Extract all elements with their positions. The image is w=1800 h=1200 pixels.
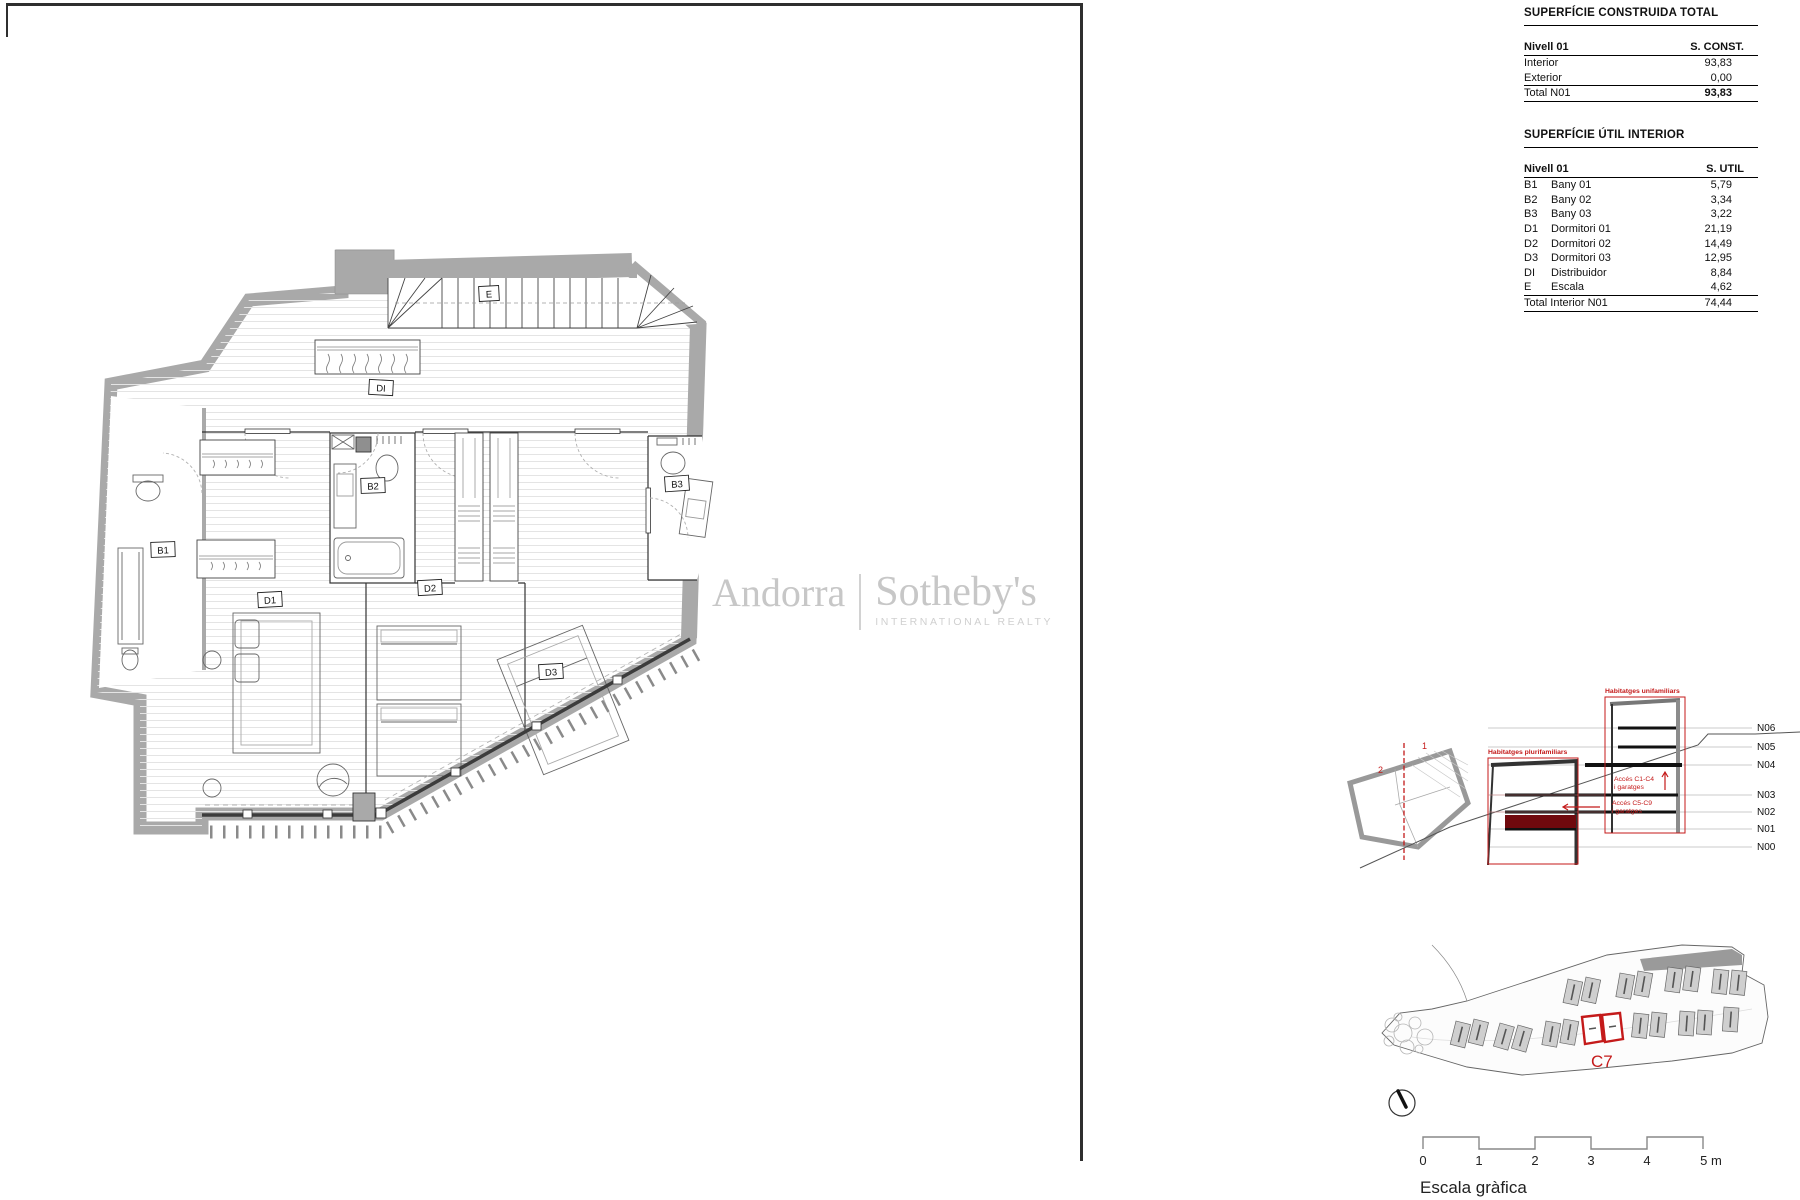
table-total-row: Total N01 93,83	[1524, 86, 1758, 102]
svg-text:i garatges: i garatges	[1614, 784, 1644, 791]
unit-label: C7	[1591, 1052, 1613, 1071]
label-bany-02: B2	[361, 478, 386, 494]
level-n01-highlight	[1505, 815, 1576, 828]
sheet-border-top	[6, 3, 1082, 6]
svg-text:D3: D3	[545, 667, 558, 679]
table-row: B2Bany 023,34	[1524, 193, 1758, 208]
facade-pillar	[353, 793, 375, 821]
col-level: Nivell 01	[1524, 162, 1569, 177]
key-plan: 2 1	[1350, 741, 1468, 860]
svg-text:1: 1	[1422, 741, 1427, 751]
svg-text:0: 0	[1419, 1153, 1426, 1168]
svg-text:B3: B3	[671, 479, 683, 491]
svg-text:2: 2	[1531, 1153, 1538, 1168]
bath-b2-floor	[330, 433, 415, 583]
svg-text:1: 1	[1475, 1153, 1482, 1168]
label-bany-03: B3	[664, 475, 689, 492]
svg-text:E: E	[486, 289, 493, 300]
north-arrow-icon	[1389, 1090, 1415, 1116]
svg-text:DI: DI	[376, 383, 386, 394]
svg-text:4: 4	[1643, 1153, 1650, 1168]
level-labels: N06 N05 N04 N03 N02 N01 N00	[1757, 723, 1776, 853]
label-dormitori-02: D2	[418, 579, 443, 595]
table-title: SUPERFÍCIE ÚTIL INTERIOR	[1524, 128, 1758, 148]
table-row: D3Dormitori 0312,95	[1524, 251, 1758, 266]
terrain-line	[1360, 732, 1800, 868]
label-distribuidor: DI	[369, 379, 394, 395]
svg-text:N05: N05	[1757, 742, 1776, 753]
table-row: D1Dormitori 0121,19	[1524, 222, 1758, 237]
sheet-border-left-tick	[6, 3, 8, 37]
graphic-scale: 0 1 2 3 4 5 m	[1418, 1128, 1748, 1170]
label-dormitori-03: D3	[539, 663, 564, 679]
floor-plan-sheet: { "tables": { "constructed": { "title": …	[0, 0, 1800, 1200]
svg-text:Accés C1-C4: Accés C1-C4	[1614, 776, 1654, 783]
table-total-row: Total Interior N01 74,44	[1524, 296, 1758, 312]
col-sconst: S. CONST.	[1690, 40, 1758, 55]
label-bany-01: B1	[151, 542, 176, 558]
col-level: Nivell 01	[1524, 40, 1569, 55]
site-plan: C7	[1372, 925, 1800, 1140]
table-row: B3Bany 033,22	[1524, 207, 1758, 222]
building-section-diagram: 2 1 N06 N05 N04 N03 N02 N01 N00 Habitatg…	[1300, 655, 1800, 870]
svg-text:3: 3	[1587, 1153, 1594, 1168]
svg-text:N04: N04	[1757, 760, 1776, 771]
floor-plan-drawing: E DI B1 B2 B3 D1 D2 D3	[85, 248, 725, 863]
table-built-area: SUPERFÍCIE CONSTRUIDA TOTAL Nivell 01 S.…	[1524, 6, 1758, 102]
svg-text:N00: N00	[1757, 842, 1776, 853]
scale-bar	[1423, 1137, 1703, 1149]
col-sutil: S. UTIL	[1706, 162, 1758, 177]
svg-text:B2: B2	[367, 481, 379, 492]
brand-subtitle: INTERNATIONAL REALTY	[875, 616, 1053, 628]
svg-text:N02: N02	[1757, 807, 1776, 818]
brand-watermark: Andorra Sotheby's INTERNATIONAL REALTY	[712, 570, 1053, 630]
svg-text:D1: D1	[264, 595, 277, 607]
table-row: B1Bany 015,79	[1524, 178, 1758, 193]
brand-left: Andorra	[712, 570, 845, 616]
svg-text:i garatges: i garatges	[1612, 808, 1642, 815]
table-useful-area: SUPERFÍCIE ÚTIL INTERIOR Nivell 01 S. UT…	[1524, 128, 1758, 312]
scale-numbers: 0 1 2 3 4 5 m	[1419, 1153, 1721, 1168]
svg-text:5 m: 5 m	[1700, 1153, 1722, 1168]
svg-text:N06: N06	[1757, 723, 1776, 734]
svg-text:B1: B1	[157, 545, 169, 556]
svg-text:Accés C5-C9: Accés C5-C9	[1612, 800, 1652, 807]
svg-text:D2: D2	[424, 583, 437, 595]
table-row: DIDistribuidor8,84	[1524, 266, 1758, 281]
table-row: Interior 93,83	[1524, 56, 1758, 71]
brand-divider	[859, 574, 861, 630]
sheet-border-right	[1080, 3, 1083, 1161]
terrain-outline	[1382, 945, 1768, 1075]
label-stair: E	[479, 285, 500, 301]
scale-caption: Escala gràfica	[1420, 1178, 1527, 1198]
section-annotations: Habitatges plurifamiliars Habitatges uni…	[1488, 688, 1685, 864]
unifamiliars-label: Habitatges unifamiliars	[1605, 688, 1680, 695]
svg-text:N03: N03	[1757, 790, 1776, 801]
svg-text:N01: N01	[1757, 824, 1776, 835]
label-dormitori-01: D1	[258, 591, 283, 607]
brand-right: Sotheby's	[875, 570, 1053, 614]
plurifamiliars-label: Habitatges plurifamiliars	[1488, 749, 1568, 756]
table-row: D2Dormitori 0214,49	[1524, 237, 1758, 252]
table-row: EEscala4,62	[1524, 280, 1758, 296]
svg-text:2: 2	[1378, 765, 1383, 775]
table-title: SUPERFÍCIE CONSTRUIDA TOTAL	[1524, 6, 1758, 26]
table-row: Exterior 0,00	[1524, 71, 1758, 87]
